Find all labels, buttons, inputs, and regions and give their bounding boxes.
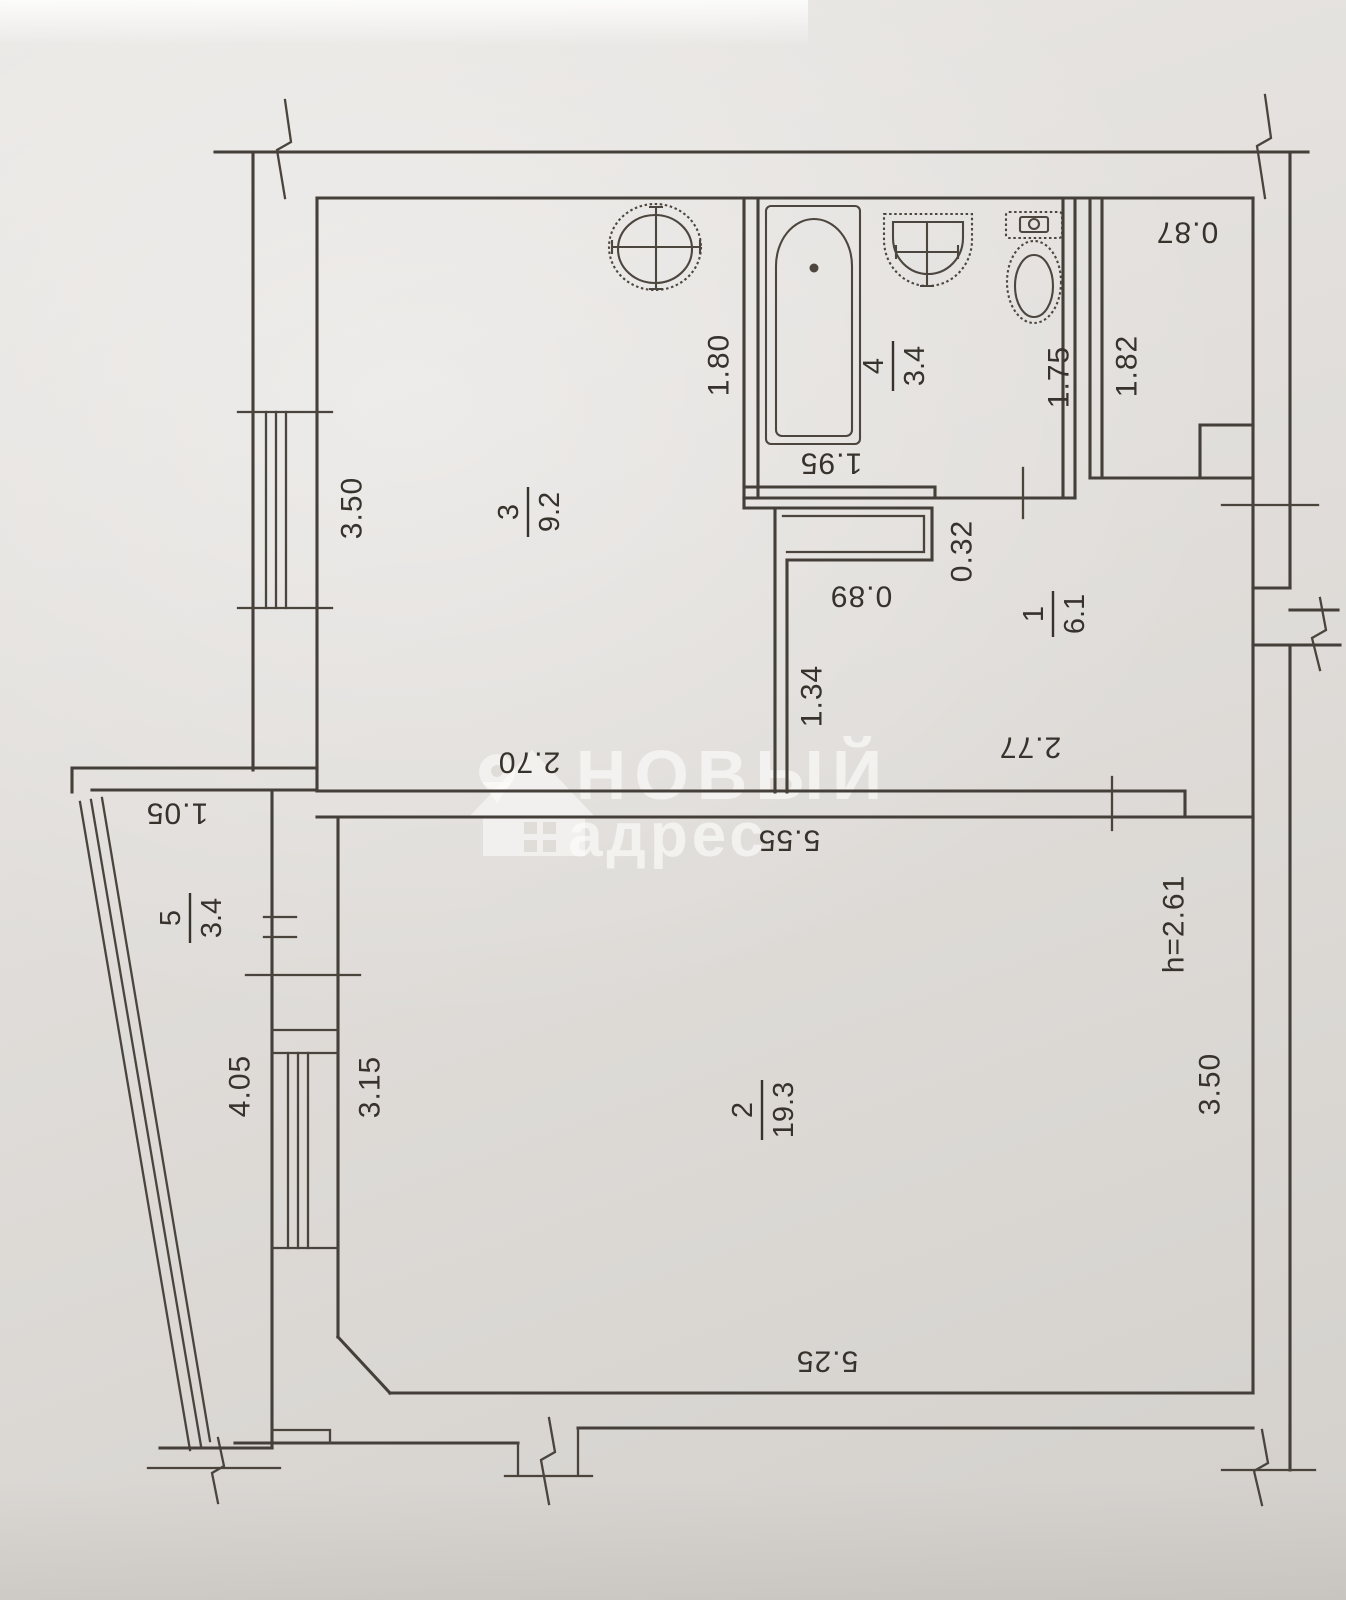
dim-living-left-segment: 3.15	[354, 1056, 387, 1118]
room-4-area: 3.4	[899, 346, 931, 386]
break-bottom-center	[541, 1418, 555, 1504]
dim-kitchen-depth: 3.50	[336, 477, 369, 539]
bathroom-sink-icon	[884, 214, 972, 286]
dim-living-depth: 3.50	[1194, 1053, 1227, 1115]
room-3-number: 3	[493, 504, 525, 520]
watermark-brand-bottom: адрес	[568, 801, 768, 870]
room-2-living-label: 2 19.3	[727, 1080, 800, 1140]
bathtub-icon	[766, 206, 860, 444]
room-4-number: 4	[858, 358, 890, 374]
balcony-window-frame	[272, 1030, 338, 1248]
dim-living-width-top: 5.55	[758, 824, 820, 857]
note-ceiling-height: h=2.61	[1158, 875, 1191, 974]
room-5-balcony-label: 5 3.4	[155, 893, 228, 943]
dim-balcony-length: 4.05	[224, 1055, 257, 1117]
dim-balcony-width: 1.05	[146, 797, 208, 830]
break-top-right	[1257, 95, 1271, 198]
room-5-number: 5	[155, 910, 187, 926]
room-2-area: 19.3	[768, 1082, 800, 1138]
room-1-area: 6.1	[1059, 594, 1091, 634]
room-3-area: 9.2	[534, 492, 566, 532]
dim-duct-depth: 0.32	[946, 520, 979, 582]
dim-bathroom-depth-left: 1.80	[703, 334, 736, 396]
bathroom-left-wall	[744, 198, 758, 498]
floor-plan-drawing: НОВЫЙ адрес	[0, 0, 1346, 1600]
dim-closet-depth: 1.82	[1111, 335, 1144, 397]
floor-plan-photo: НОВЫЙ адрес	[0, 0, 1346, 1600]
vent-duct-inner	[783, 516, 924, 552]
dim-kitchen-width: 2.70	[498, 746, 560, 779]
balcony-window-glass	[288, 1053, 308, 1248]
dim-duct-width: 0.89	[830, 580, 892, 613]
dim-hall-wall-length: 1.34	[796, 665, 829, 727]
room-2-number: 2	[727, 1102, 759, 1118]
closet-bottom-wall	[1090, 425, 1253, 478]
balcony-structure	[72, 768, 360, 1468]
room-1-hall-label: 1 6.1	[1018, 591, 1091, 637]
room-4-bathroom-label: 4 3.4	[858, 341, 931, 391]
kitchen-sink-icon	[609, 204, 701, 290]
dim-bathroom-width: 1.95	[800, 447, 862, 480]
dim-closet-width: 0.87	[1156, 216, 1218, 249]
closet-left-wall	[1090, 198, 1102, 478]
dim-hall-width: 2.77	[999, 731, 1061, 764]
dim-living-width-bottom: 5.25	[796, 1345, 858, 1378]
dim-bathroom-depth-right: 1.75	[1043, 346, 1076, 408]
room-5-area: 3.4	[196, 898, 228, 938]
room-3-kitchen-label: 3 9.2	[493, 487, 566, 537]
bathroom-bottom-wall	[744, 487, 1075, 498]
break-bottom-right	[1254, 1430, 1268, 1505]
room-1-number: 1	[1018, 606, 1050, 622]
toilet-icon	[1006, 212, 1062, 323]
break-top-left	[277, 100, 291, 198]
